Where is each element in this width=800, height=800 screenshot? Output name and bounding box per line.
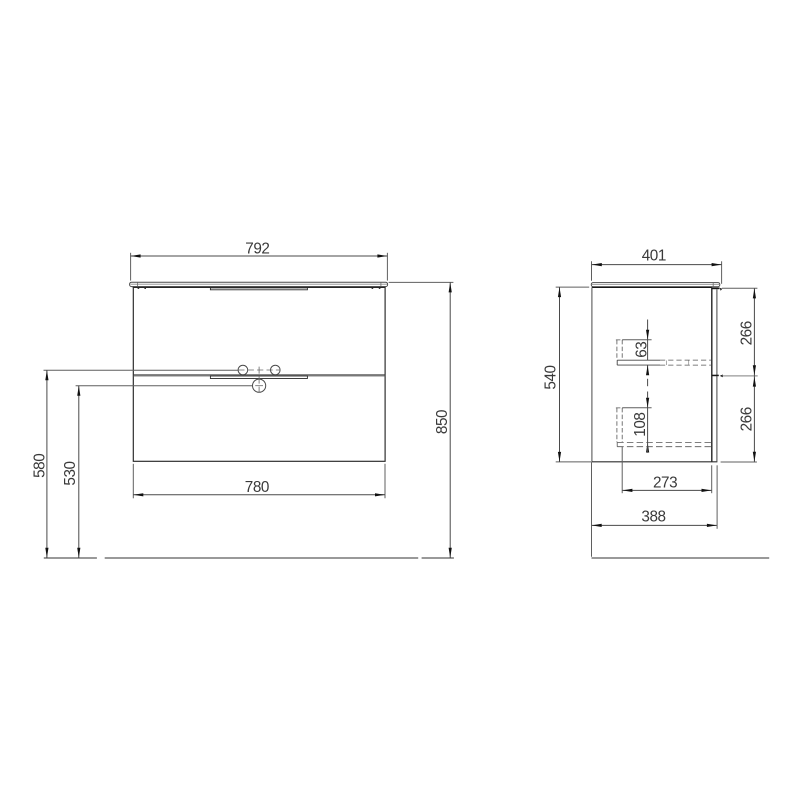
svg-text:266: 266 xyxy=(738,407,755,431)
svg-text:266: 266 xyxy=(738,321,755,345)
svg-text:273: 273 xyxy=(653,474,677,491)
svg-text:530: 530 xyxy=(62,461,79,485)
svg-text:63: 63 xyxy=(634,342,651,358)
svg-text:792: 792 xyxy=(245,241,269,258)
svg-text:850: 850 xyxy=(434,410,451,434)
svg-text:401: 401 xyxy=(642,248,666,265)
svg-text:780: 780 xyxy=(245,479,269,496)
svg-text:540: 540 xyxy=(543,365,560,389)
svg-text:580: 580 xyxy=(31,454,48,478)
svg-text:388: 388 xyxy=(641,509,665,526)
svg-text:108: 108 xyxy=(632,413,649,437)
